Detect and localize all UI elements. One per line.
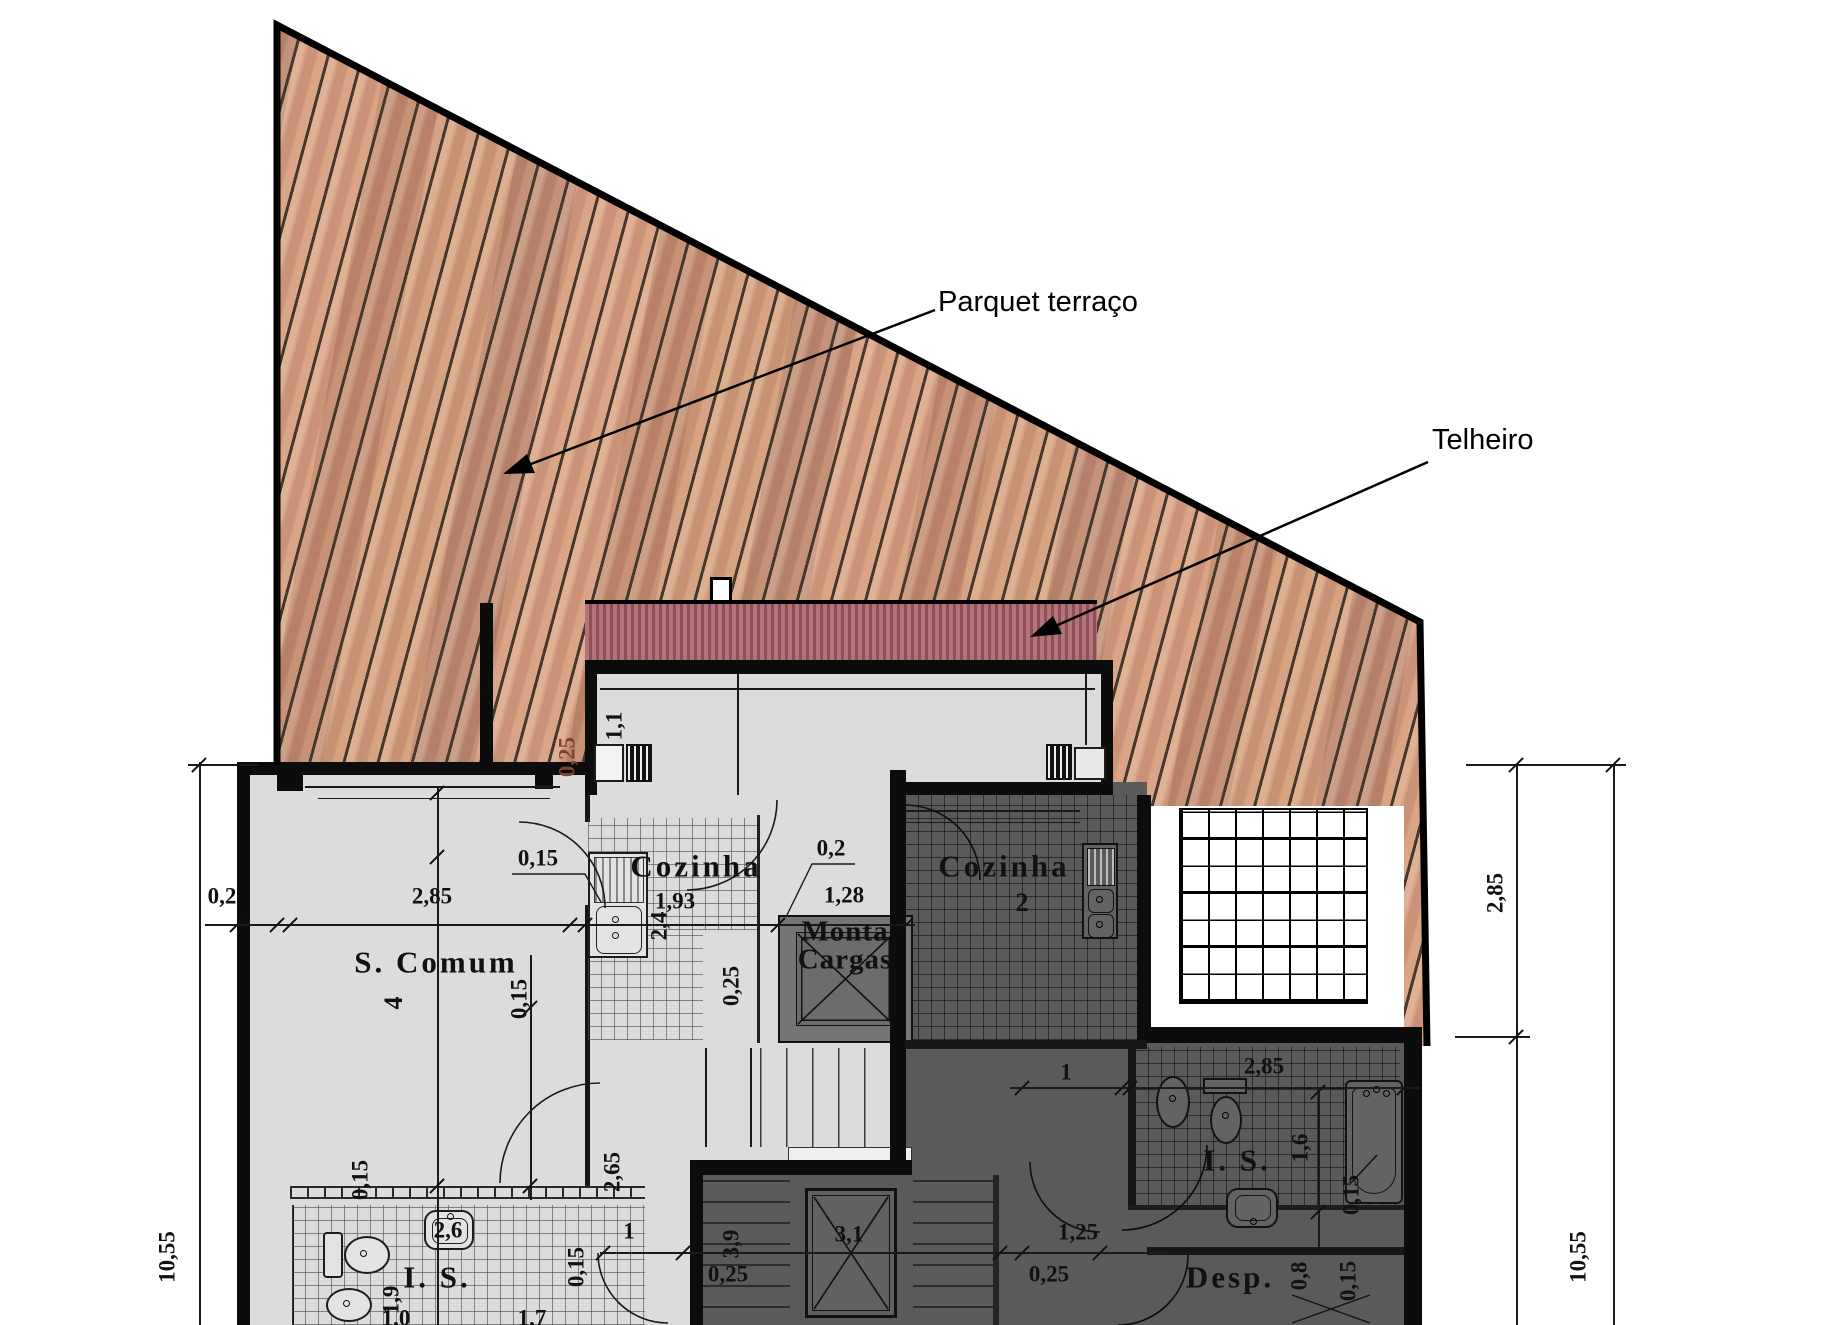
dim-0-15-partition: 0,15 <box>349 1160 372 1200</box>
dim-0-15-door: 0,15 <box>565 1247 588 1287</box>
dim-0-15-mid: 0,15 <box>508 979 531 1019</box>
wall-annex-bottom <box>905 782 1113 795</box>
dim-0-2-left: 0,2 <box>208 885 237 908</box>
dim-1-25-corridor: 1,25 <box>1058 1221 1098 1244</box>
dim-1-7-bottom: 1,7 <box>518 1307 547 1325</box>
dim-2-85-right: 2,85 <box>1484 873 1507 913</box>
room-label-monta-line2: Cargas <box>798 946 893 975</box>
wall-cozinha2-right <box>1137 795 1151 1040</box>
dim-2-6-sink: 2,6 <box>434 1219 463 1242</box>
dim-1-0-bottom: 1,0 <box>382 1307 411 1325</box>
wall-left <box>237 762 250 1325</box>
stair-flight-upper <box>760 1048 890 1147</box>
is2-toilet-bowl <box>1210 1096 1242 1144</box>
label-telheiro: Telheiro <box>1432 426 1534 455</box>
wall-core-top <box>690 1160 912 1175</box>
room-label-is-1: I. S. <box>403 1262 471 1293</box>
dim-2-85-scomum: 2,85 <box>412 885 452 908</box>
dim-0-15-kitchen: 0,15 <box>518 847 558 870</box>
is2-sink <box>1226 1188 1278 1228</box>
room-label-is-2: I. S. <box>1203 1145 1271 1176</box>
roof-notch <box>710 577 732 603</box>
dim-2-4-sink: 2,4 <box>648 912 671 941</box>
dim-1-6-is2: 1,6 <box>1289 1134 1312 1163</box>
room-label-cozinha-1: Cozinha <box>630 851 761 882</box>
dim-3-1-elevator: 3,1 <box>835 1223 864 1246</box>
dim-0-8-desp: 0,8 <box>1288 1262 1311 1291</box>
pergola-grid <box>1179 808 1368 1004</box>
dim-10-55-right: 10,55 <box>1567 1231 1590 1283</box>
annex-floor <box>585 660 1113 795</box>
dim-10-55-left: 10,55 <box>156 1231 179 1283</box>
wall-top-left <box>237 762 585 775</box>
is1-toilet-bowl <box>344 1236 390 1274</box>
dim-1-hall: 1 <box>623 1220 635 1243</box>
room-num-s-comum: 4 <box>381 997 407 1010</box>
dim-0-25-stairs: 0,25 <box>708 1263 748 1286</box>
dim-3-9-stairs: 3,9 <box>720 1230 743 1259</box>
partition-hatch <box>290 1186 645 1199</box>
dim-0-25-red: 0,25 <box>556 737 579 777</box>
room-label-desp: Desp. <box>1186 1262 1274 1293</box>
dim-0-2-monta: 0,2 <box>817 837 846 860</box>
dim-0-25-corridor: 0,25 <box>1029 1263 1069 1286</box>
is1-toilet-tank <box>323 1232 343 1278</box>
telheiro-side-wall <box>480 603 493 775</box>
dim-0-25-kitchen: 0,25 <box>720 966 743 1006</box>
dim-1-93-cozinha1: 1,93 <box>655 890 695 913</box>
pergola-area <box>1143 806 1404 1032</box>
dim-1-28-monta: 1,28 <box>824 884 864 907</box>
wall-core-left <box>690 1160 703 1325</box>
dim-1-1-annex: 1,1 <box>603 712 626 741</box>
room-label-monta-line1: Monta <box>801 918 888 947</box>
cozinha2-sink <box>1082 843 1118 939</box>
dim-0-15-desp: 0,15 <box>1337 1261 1360 1301</box>
dim-2-85-is2: 2,85 <box>1244 1055 1284 1078</box>
dim-1-dark: 1 <box>1060 1061 1072 1084</box>
floor-plan: Parquet terraço Telheiro S. Comum 4 Cozi… <box>0 0 1842 1325</box>
wall-right <box>1404 1027 1422 1325</box>
room-label-s-comum: S. Comum <box>354 947 518 978</box>
wall-top-right <box>1137 1027 1422 1043</box>
dim-0-15-is2: 0,15 <box>1340 1175 1363 1215</box>
wall-annex-top <box>585 660 1113 674</box>
wall-party <box>890 770 906 1162</box>
room-num-cozinha-2: 2 <box>1016 890 1029 916</box>
is2-bidet <box>1156 1076 1190 1128</box>
is2-toilet-tank <box>1203 1078 1247 1094</box>
room-label-cozinha-2: Cozinha <box>938 851 1069 882</box>
dim-2-65-hall: 2,65 <box>601 1152 624 1192</box>
label-parquet-terraco: Parquet terraço <box>938 288 1138 317</box>
